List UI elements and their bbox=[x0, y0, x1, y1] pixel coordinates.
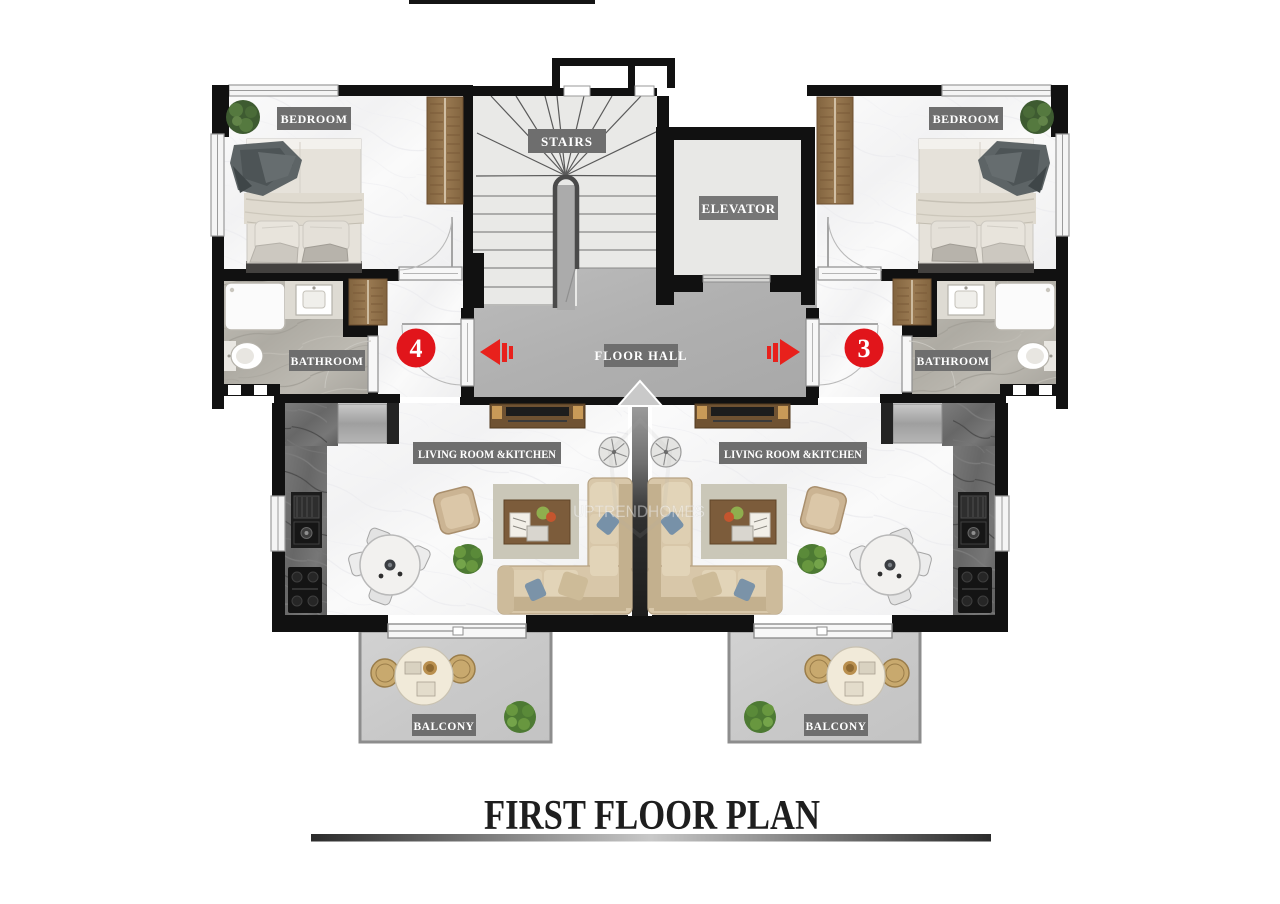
svg-text:UPTRENDHOMES: UPTRENDHOMES bbox=[573, 502, 705, 521]
svg-text:BATHROOM: BATHROOM bbox=[917, 356, 990, 368]
svg-text:STAIRS: STAIRS bbox=[541, 134, 593, 149]
svg-text:3: 3 bbox=[858, 334, 871, 363]
svg-text:BATHROOM: BATHROOM bbox=[291, 356, 364, 368]
svg-text:LIVING ROOM &KITCHEN: LIVING ROOM &KITCHEN bbox=[418, 449, 557, 461]
svg-text:ELEVATOR: ELEVATOR bbox=[701, 201, 775, 216]
svg-text:LIVING ROOM &KITCHEN: LIVING ROOM &KITCHEN bbox=[724, 449, 863, 461]
svg-text:FIRST FLOOR PLAN: FIRST FLOOR PLAN bbox=[484, 793, 820, 839]
svg-text:BALCONY: BALCONY bbox=[805, 721, 866, 733]
svg-text:BALCONY: BALCONY bbox=[413, 721, 474, 733]
svg-text:BEDROOM: BEDROOM bbox=[933, 112, 1000, 126]
svg-text:FLOOR HALL: FLOOR HALL bbox=[595, 349, 688, 363]
svg-text:4: 4 bbox=[410, 334, 423, 363]
svg-text:BEDROOM: BEDROOM bbox=[281, 112, 348, 126]
